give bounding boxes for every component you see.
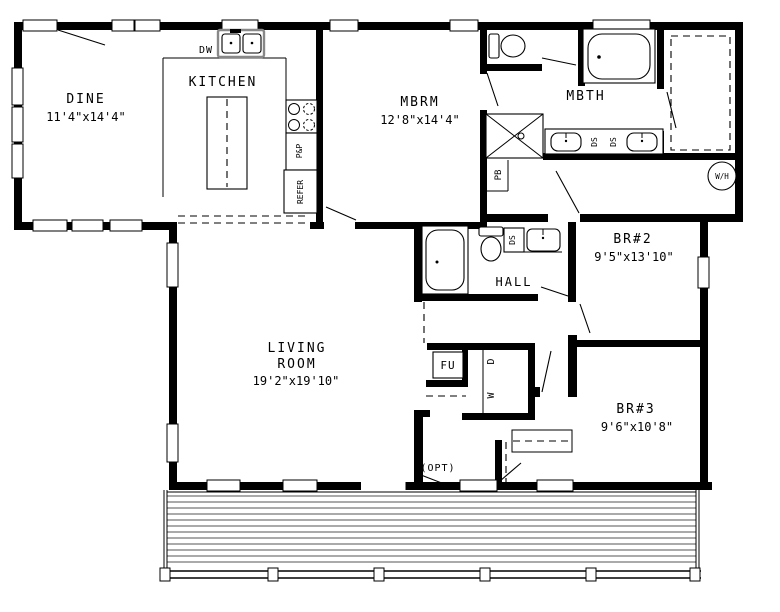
mbth-label: MBTH (566, 89, 605, 104)
deck-railing (160, 568, 701, 581)
refrigerator-label: REFER (296, 180, 305, 204)
br2-dims: 9'5"x13'10" (594, 250, 673, 264)
living-label-1: LIVING (268, 341, 327, 356)
mbth-double-sink-label-1: DS (590, 137, 599, 147)
mbth-shower (486, 114, 543, 158)
dryer-label: D (486, 357, 497, 364)
floor-plan-page: DINE 11'4"x14'4" KITCHEN MBRM 12'8"x14'4… (0, 0, 780, 612)
washer-label: W (486, 391, 497, 398)
mbth-toilet (489, 34, 525, 58)
hall-tub (422, 226, 468, 294)
plumbing-label: PB (494, 170, 504, 181)
living-dims: 19'2"x19'10" (253, 374, 340, 388)
kitchen-label: KITCHEN (189, 75, 258, 90)
range (286, 100, 317, 133)
walk-in-closet-shelving (671, 36, 730, 150)
mbth-tub (583, 29, 655, 83)
floor-plan-drawing: DINE 11'4"x14'4" KITCHEN MBRM 12'8"x14'4… (0, 0, 780, 612)
mbth-double-sink-label-2: DS (609, 137, 618, 147)
dine-label: DINE (66, 92, 105, 107)
kitchen-sink (218, 29, 264, 57)
optional-door-label: (OPT) (420, 463, 455, 474)
kitchen-island (207, 97, 247, 189)
br2-label: BR#2 (613, 232, 652, 247)
br3-label: BR#3 (616, 402, 655, 417)
furnace-label: FU (440, 359, 455, 372)
mbth-vanity (545, 129, 663, 154)
hall-double-sink-label: DS (508, 235, 517, 245)
hall-toilet (479, 227, 503, 261)
mbrm-dims: 12'8"x14'4" (380, 113, 459, 127)
br3-dims: 9'6"x10'8" (601, 420, 673, 434)
dine-dims: 11'4"x14'4" (46, 110, 125, 124)
living-label-2: ROOM (277, 357, 316, 372)
br3-closet-shelf (512, 430, 572, 452)
mbrm-label: MBRM (400, 95, 439, 110)
dishwasher-label: DW (199, 45, 213, 56)
deck (160, 490, 701, 581)
pantry-label: P&P (295, 144, 304, 159)
water-heater-label: W/H (715, 172, 729, 181)
hall-label: HALL (496, 275, 533, 289)
